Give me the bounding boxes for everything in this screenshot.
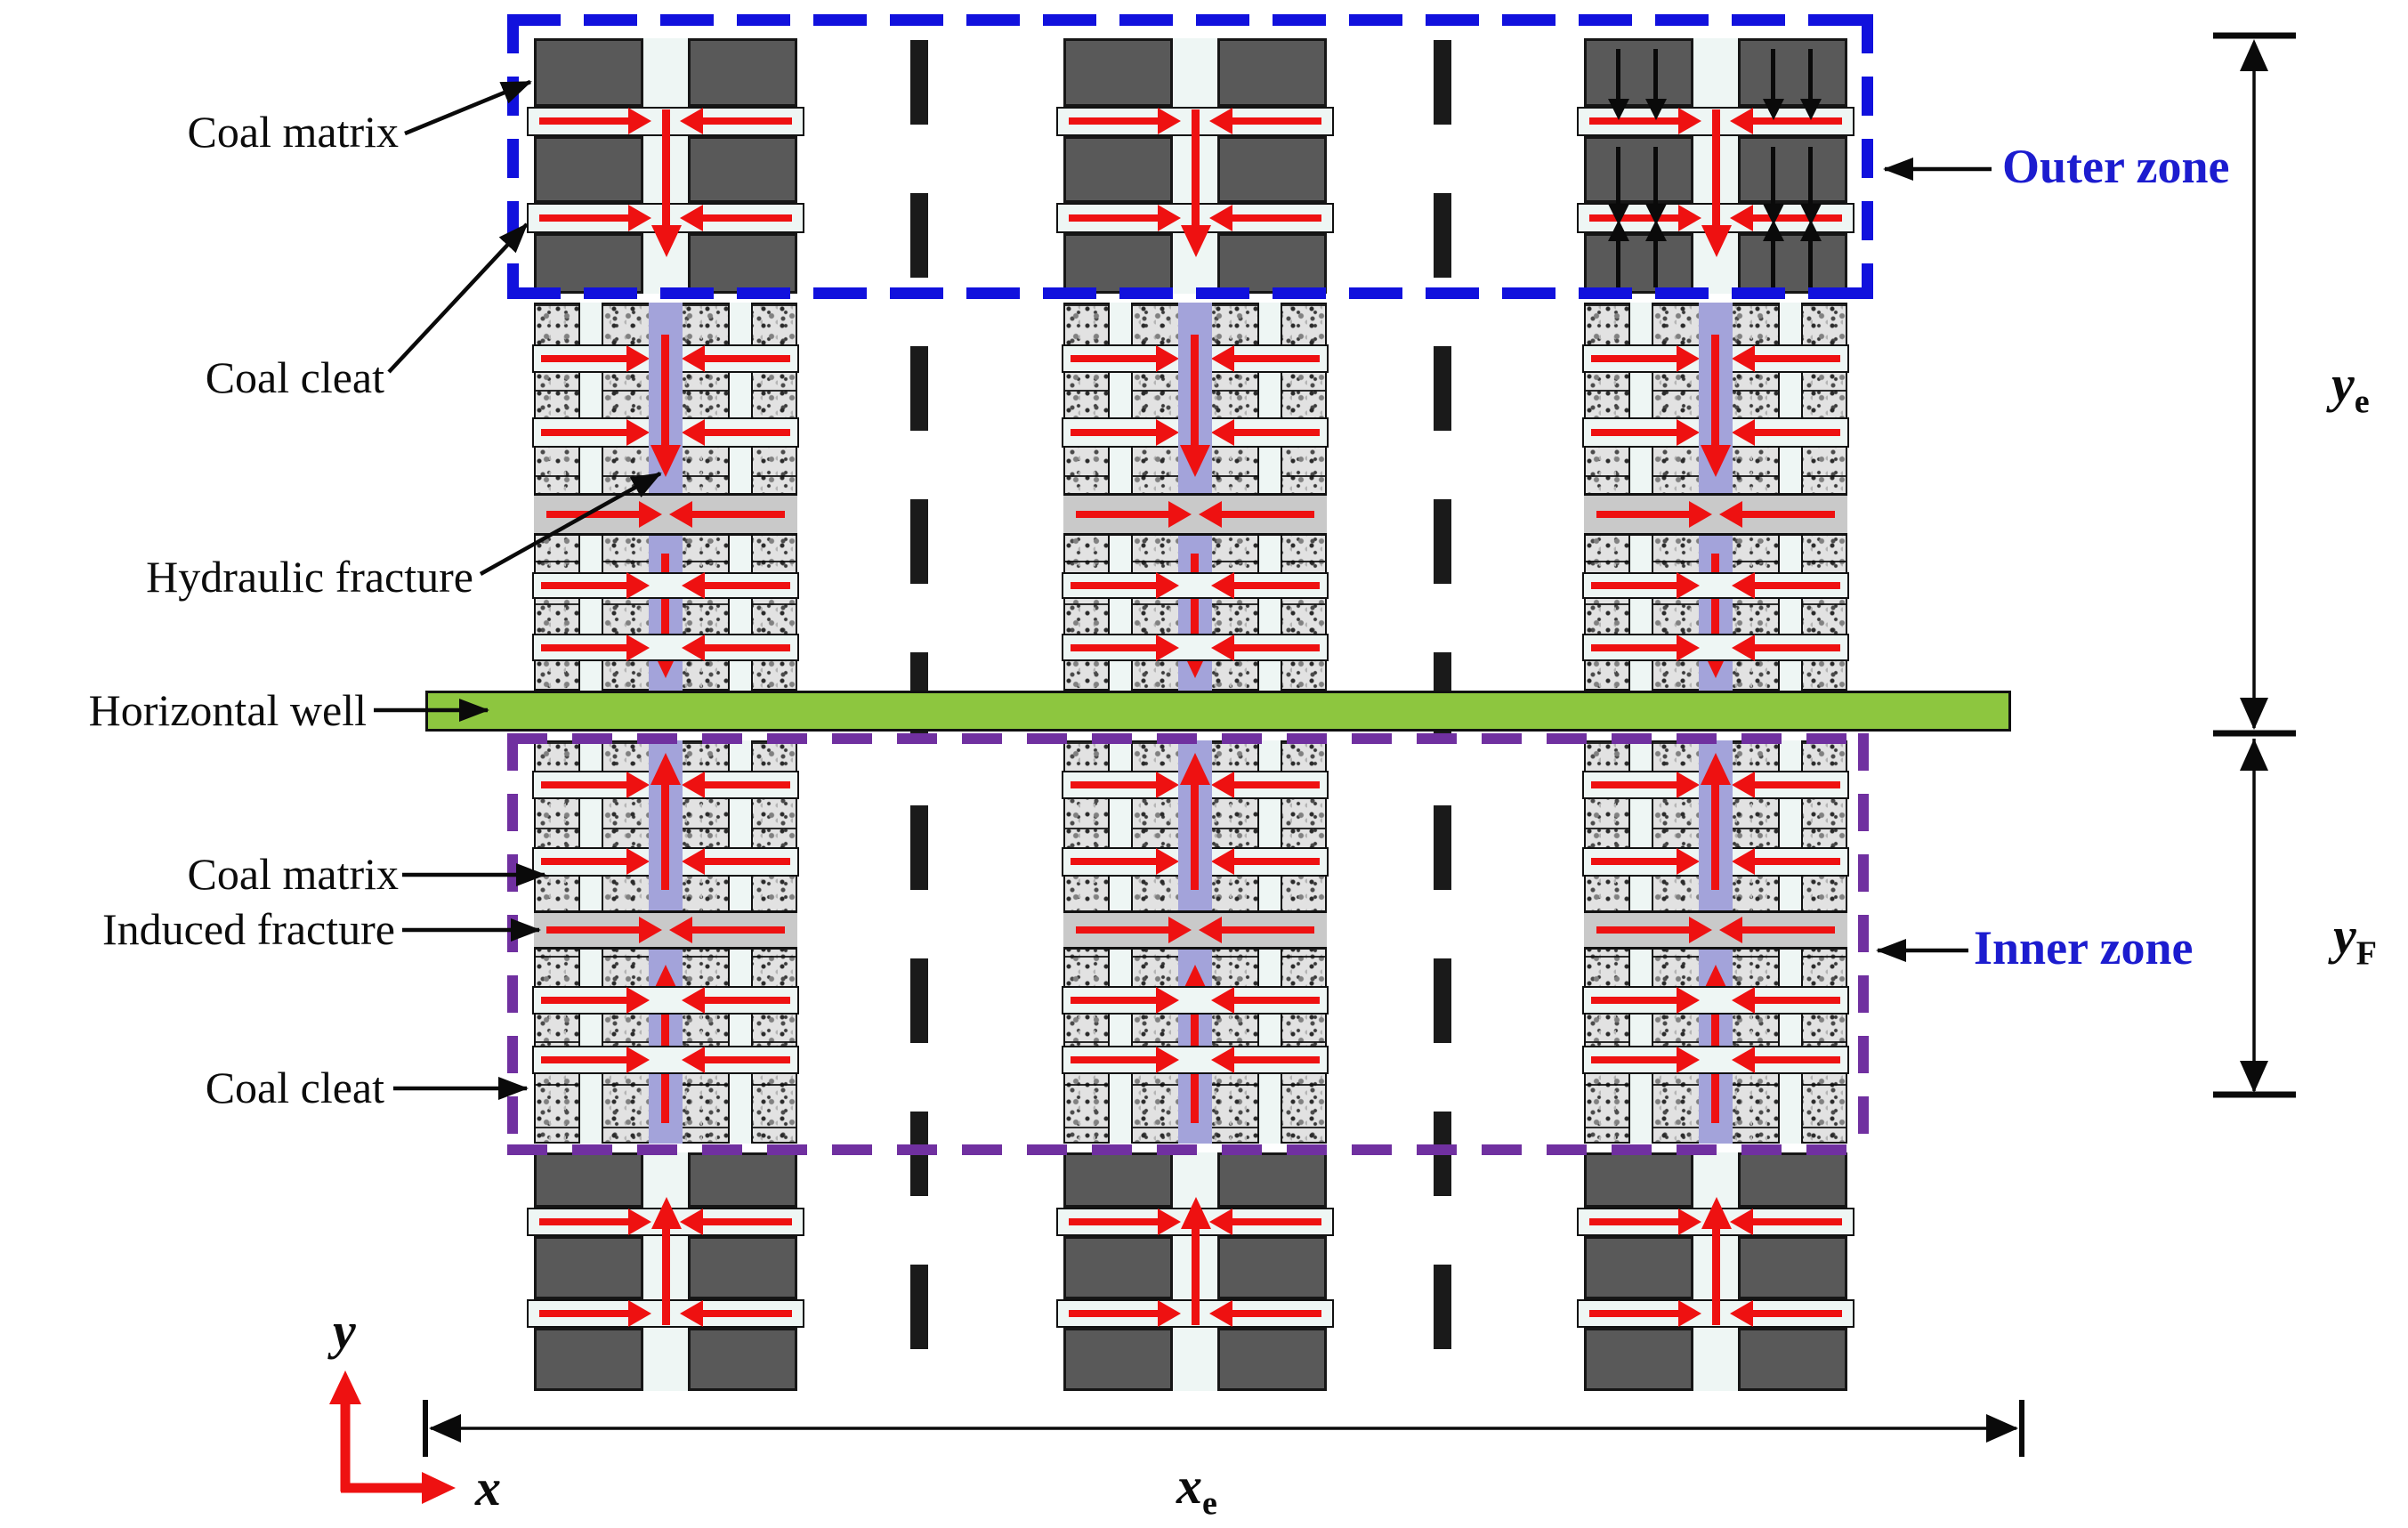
coal-matrix-top-arrow-icon — [405, 82, 530, 133]
hydraulic-fracture-label: Hydraulic fracture — [59, 548, 473, 606]
x-axis-label: x — [475, 1458, 501, 1517]
induced-fracture-label: Induced fracture — [18, 901, 395, 958]
inner-zone-label: Inner zone — [1974, 920, 2194, 975]
ye-sub: e — [2355, 384, 2370, 421]
hydraulic-fracture-arrow-icon — [481, 473, 660, 574]
coal-cleat-inner-label: Coal cleat — [133, 1059, 384, 1117]
yF-sub: F — [2356, 935, 2377, 973]
yF-dimension-label: yF — [2333, 906, 2377, 966]
xe-dimension-label: xe — [1176, 1456, 1217, 1516]
coal-cleat-top-arrow-icon — [389, 224, 527, 372]
coal-matrix-inner-label: Coal matrix — [116, 845, 399, 903]
xe-dimension — [425, 1400, 2022, 1457]
coal-seam-fracture-diagram: Coal matrix Coal cleat Hydraulic fractur… — [0, 0, 2408, 1528]
xe-sub: e — [1202, 1485, 1217, 1523]
yF-dimension — [2213, 739, 2296, 1095]
xe-base: x — [1176, 1457, 1202, 1515]
coal-matrix-top-label: Coal matrix — [116, 103, 399, 161]
y-axis-label: y — [333, 1301, 356, 1361]
ye-dimension-label: ye — [2331, 354, 2370, 414]
outer-zone-label: Outer zone — [2002, 139, 2229, 194]
horizontal-well-label: Horizontal well — [9, 682, 367, 740]
coal-cleat-top-label: Coal cleat — [133, 349, 384, 407]
label-pointer-arrows — [374, 82, 1992, 1088]
yF-base: y — [2333, 907, 2356, 965]
annotation-overlay — [0, 0, 2408, 1528]
coordinate-axes — [329, 1370, 456, 1504]
ye-base: y — [2331, 355, 2355, 413]
